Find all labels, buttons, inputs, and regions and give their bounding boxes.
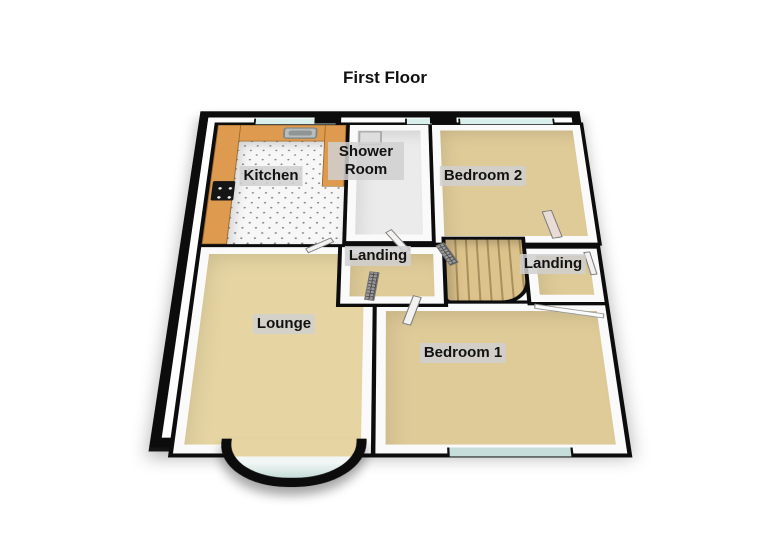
- staircase: [441, 237, 531, 304]
- label-bedroom2: Bedroom 2: [440, 166, 526, 186]
- label-landing-left: Landing: [345, 246, 411, 266]
- wall-stub-2: [430, 116, 457, 124]
- bedroom1-window: [447, 448, 574, 457]
- label-landing-right: Landing: [520, 254, 586, 274]
- label-kitchen: Kitchen: [239, 166, 302, 186]
- wall-stub-1: [314, 116, 341, 124]
- bedroom2-window: [458, 119, 555, 125]
- lounge-bay-window: [217, 439, 367, 487]
- kitchen-sink: [283, 127, 318, 138]
- floorplan-canvas: First Floor Kitchen Shower Room Bedroom …: [0, 0, 770, 560]
- label-bedroom1: Bedroom 1: [420, 343, 506, 363]
- label-lounge: Lounge: [253, 314, 315, 334]
- label-shower-room: Shower Room: [328, 142, 404, 180]
- room-shower-floor: [342, 122, 436, 244]
- page-title: First Floor: [343, 68, 427, 88]
- kitchen-hob: [210, 181, 235, 200]
